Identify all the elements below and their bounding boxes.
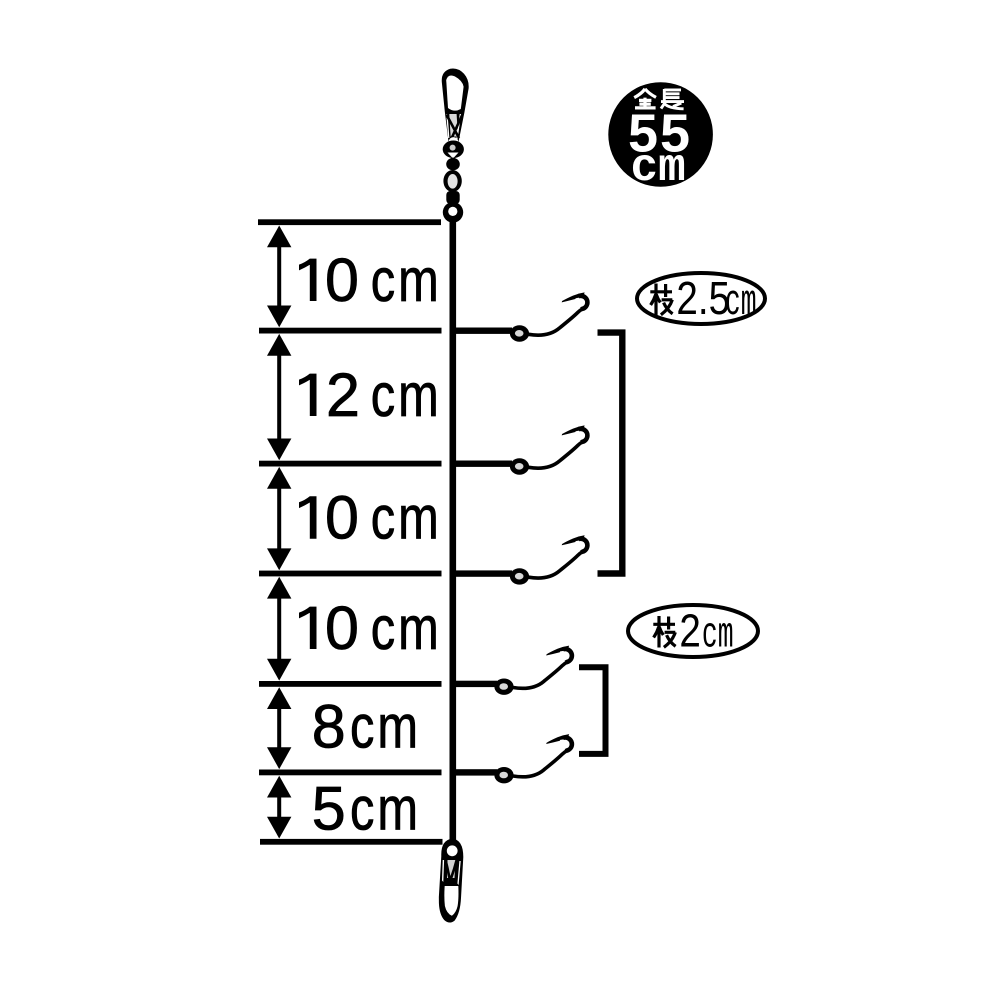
svg-text:cm: cm bbox=[371, 361, 442, 429]
svg-text:cm: cm bbox=[371, 594, 442, 662]
svg-text:2.5: 2.5 bbox=[676, 273, 730, 324]
svg-text:cm: cm bbox=[371, 483, 442, 551]
svg-text:8: 8 bbox=[312, 693, 346, 761]
svg-text:0: 0 bbox=[325, 484, 359, 552]
svg-text:5: 5 bbox=[312, 775, 346, 843]
svg-text:cm: cm bbox=[371, 246, 442, 314]
svg-text:2: 2 bbox=[679, 605, 700, 656]
svg-text:0: 0 bbox=[325, 246, 359, 314]
svg-text:cm: cm bbox=[631, 142, 686, 194]
svg-text:cm: cm bbox=[725, 278, 757, 328]
svg-text:cm: cm bbox=[702, 610, 734, 660]
svg-text:2: 2 bbox=[326, 361, 360, 429]
svg-text:0: 0 bbox=[325, 594, 359, 662]
svg-text:cm: cm bbox=[350, 774, 421, 842]
svg-text:cm: cm bbox=[350, 692, 421, 760]
